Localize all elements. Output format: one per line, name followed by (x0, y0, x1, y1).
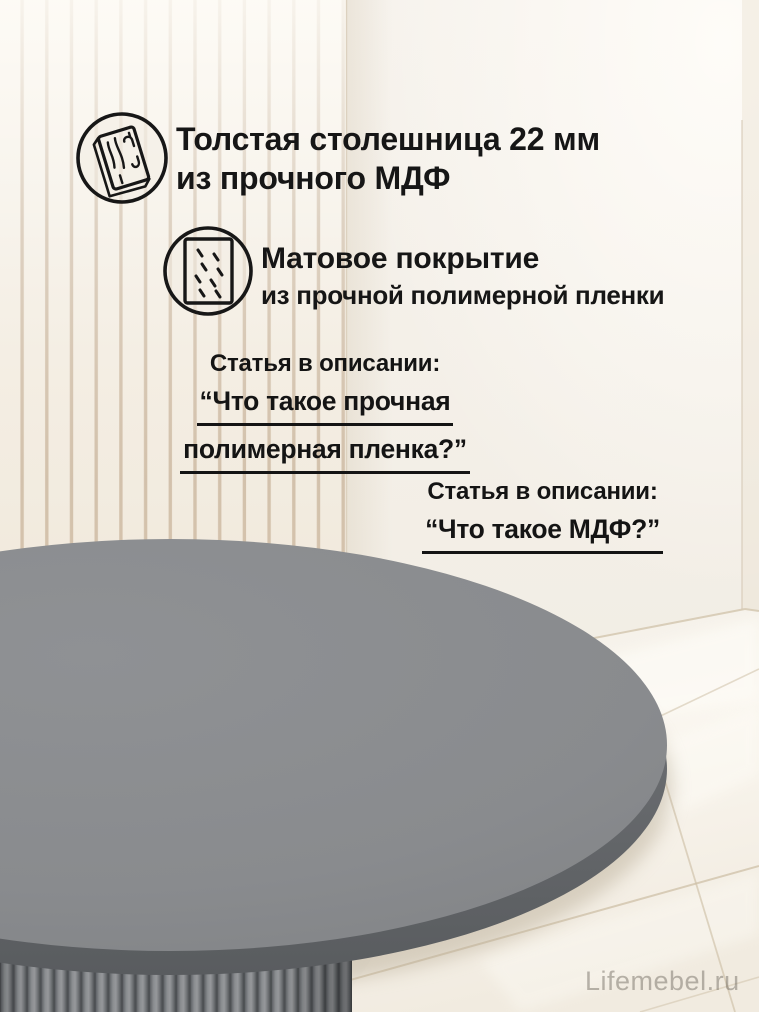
mdf-board-icon (74, 110, 170, 206)
article-note-film: Статья в описании: “Что такое прочная по… (140, 350, 510, 474)
article-note-mdf: Статья в описании: “Что такое МДФ?” (390, 478, 695, 554)
feature-subtitle-coating: из прочной полимерной пленки (261, 279, 664, 312)
feature-matte-coating: Матовое покрытие из прочной полимерной п… (261, 241, 664, 312)
article-quote-line: “Что такое прочная (197, 386, 454, 426)
product-photo: Толстая столешница 22 мм из прочного МДФ… (0, 0, 759, 1012)
wall-corner-face (742, 0, 759, 614)
article-label: Статья в описании: (390, 478, 695, 506)
article-quote-line: полимерная пленка?” (180, 434, 470, 474)
site-watermark: Lifemebel.ru (585, 966, 740, 997)
feature-title-tabletop: Толстая столешница 22 мм из прочного МДФ (176, 120, 600, 198)
slat-wall-shadow (346, 0, 392, 650)
matte-film-icon (161, 224, 255, 318)
article-quote-line: “Что такое МДФ?” (422, 514, 663, 554)
feature-icon-circle (161, 224, 255, 318)
feature-title-coating: Матовое покрытие (261, 241, 664, 277)
article-label: Статья в описании: (140, 350, 510, 378)
feature-icon-circle (74, 110, 170, 206)
